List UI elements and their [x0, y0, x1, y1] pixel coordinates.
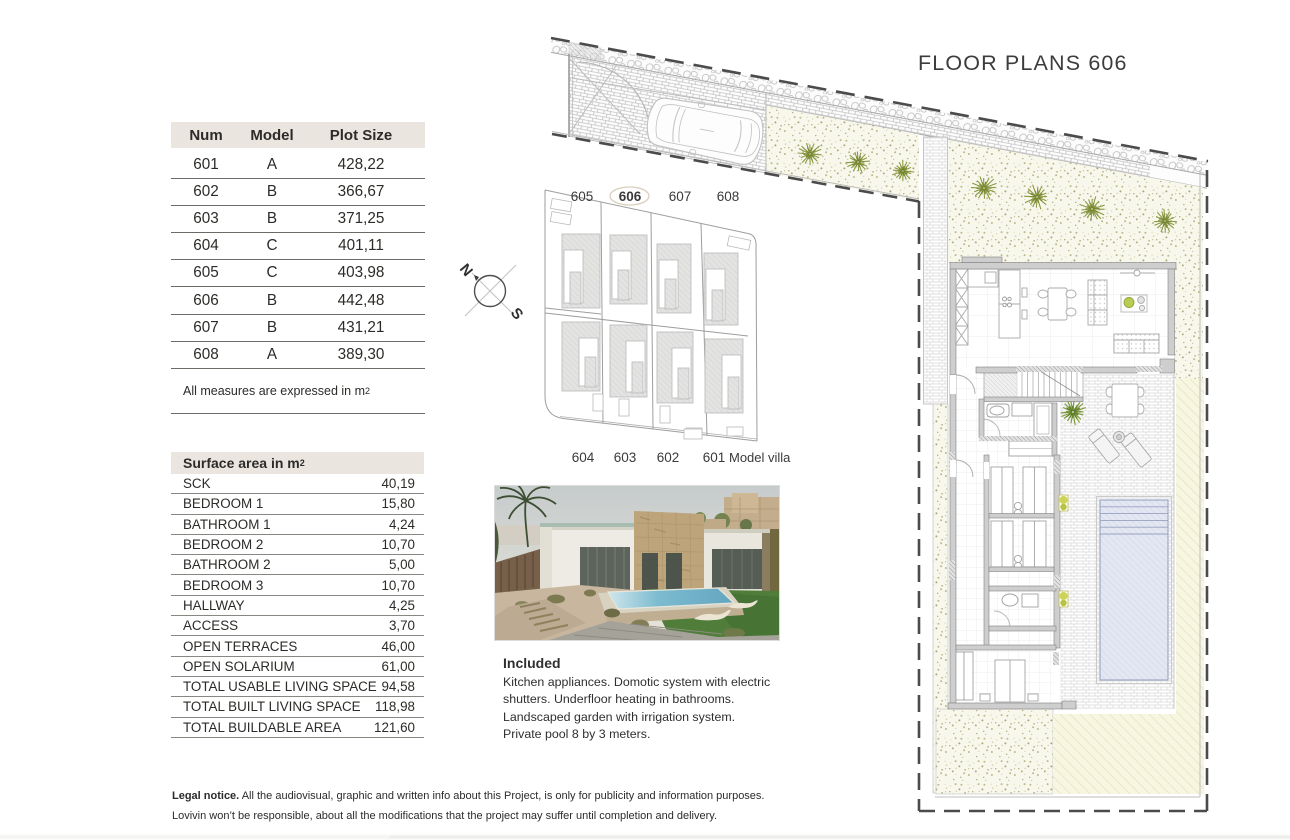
- svg-text:N: N: [456, 261, 476, 280]
- svg-text:606: 606: [619, 189, 642, 204]
- svg-text:603: 603: [614, 450, 637, 465]
- svg-text:605: 605: [571, 189, 594, 204]
- svg-text:Model villa: Model villa: [729, 450, 791, 465]
- svg-text:604: 604: [572, 450, 595, 465]
- svg-text:601: 601: [703, 450, 726, 465]
- svg-text:602: 602: [657, 450, 680, 465]
- svg-text:S: S: [507, 305, 526, 324]
- svg-text:608: 608: [717, 189, 740, 204]
- svg-text:607: 607: [669, 189, 692, 204]
